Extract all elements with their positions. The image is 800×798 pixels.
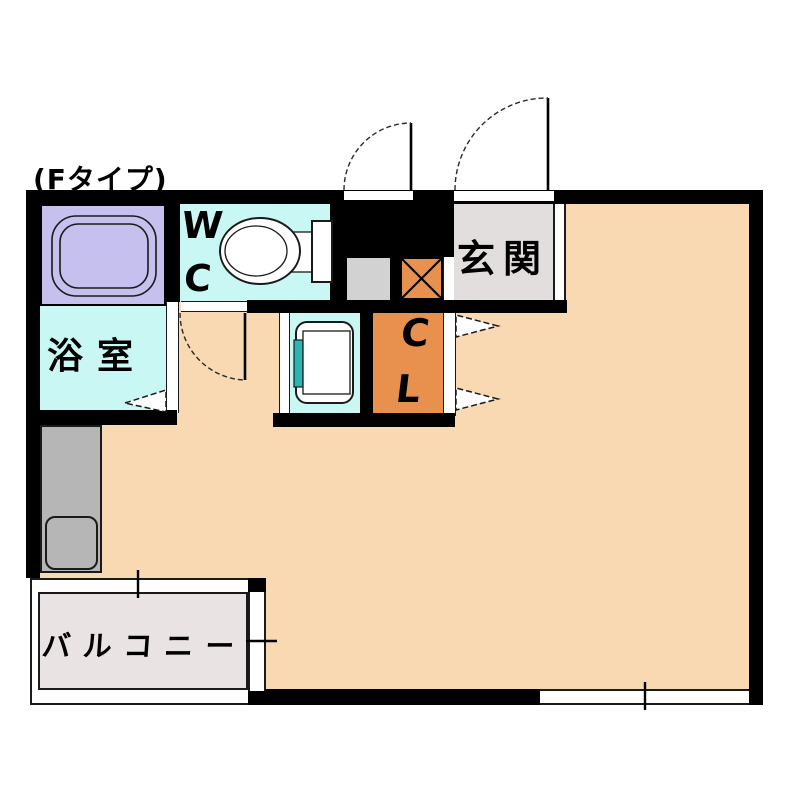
bathtub-icon: [52, 216, 156, 296]
balcony-room-label: バルコニー: [41, 623, 248, 665]
pipe-space-cross-icon: [400, 257, 443, 300]
wc-door-icon: [180, 313, 245, 380]
floor-plan: (Fタイプ) WC 浴室 玄関 CL バルコニー: [0, 0, 800, 798]
service-door-icon: [344, 123, 411, 190]
washing-machine-pan-icon: [294, 322, 353, 403]
entrance-room-label: 玄関: [457, 228, 549, 283]
bathroom-room-label: 浴室: [47, 327, 147, 379]
closet-folding-door-icon: [456, 315, 498, 410]
wc-room-label: WC: [176, 204, 222, 310]
toilet-icon: [220, 218, 332, 284]
entrance-door-icon: [455, 98, 548, 190]
floor-type-label: (Fタイプ): [33, 158, 168, 198]
bathroom-folding-door-icon: [125, 390, 166, 412]
